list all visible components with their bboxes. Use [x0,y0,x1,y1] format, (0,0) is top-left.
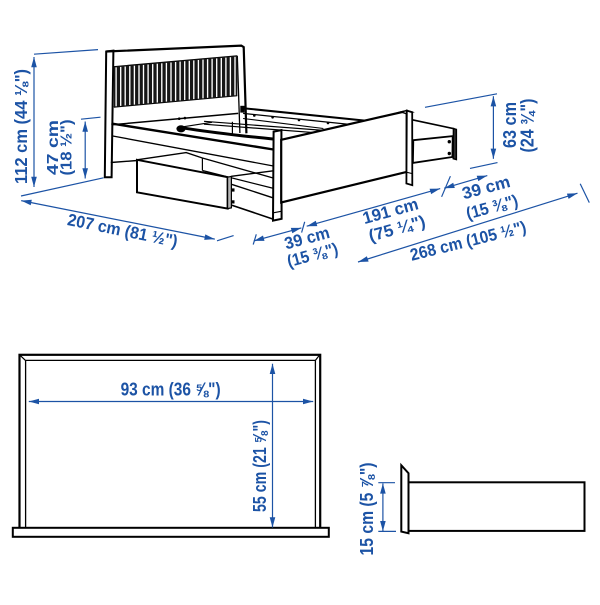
svg-text:93 cm (36 ⅝"): 93 cm (36 ⅝") [121,380,221,400]
svg-text:268 cm (105 ½"): 268 cm (105 ½") [408,218,528,265]
svg-text:55 cm (21 ⅝"): 55 cm (21 ⅝") [249,420,270,512]
svg-text:(18 ½"): (18 ½") [59,120,76,176]
svg-text:112 cm (44 ⅛"): 112 cm (44 ⅛") [11,69,31,184]
svg-text:(24 ¾"): (24 ¾") [518,99,538,153]
svg-text:207 cm (81 ½"): 207 cm (81 ½") [66,210,180,251]
svg-text:15 cm (5 ⅞"): 15 cm (5 ⅞") [357,463,377,556]
